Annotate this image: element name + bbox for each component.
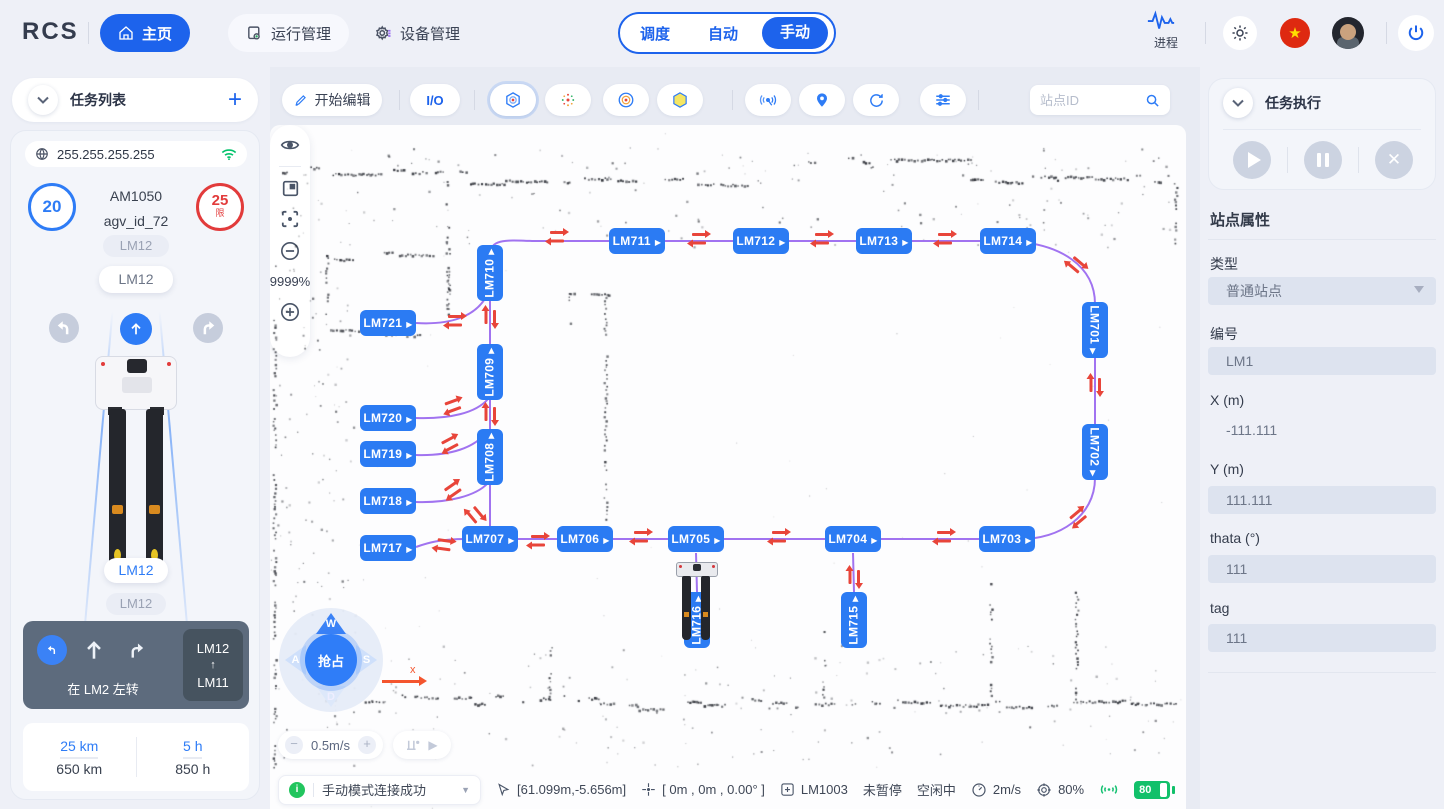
straight-icon[interactable] xyxy=(81,637,107,663)
pause-icon xyxy=(1317,153,1329,167)
task-execution-sidebar: 任务执行 ✕ 站点属性 类型普通站点编号LM1X (m)-111.111Y (m… xyxy=(1200,67,1444,809)
mode-tabs: 调度 自动 手动 xyxy=(618,12,836,54)
cursor-icon xyxy=(496,782,511,797)
field-label: X (m) xyxy=(1210,392,1244,408)
collapse-button[interactable] xyxy=(28,85,58,115)
status-item: LM1003 xyxy=(780,782,848,797)
mode-status-text: 手动模式连接成功 xyxy=(322,780,453,799)
start-edit-button[interactable]: 开始编辑 xyxy=(282,84,382,116)
divider xyxy=(1386,22,1387,44)
station-tag: LM12 xyxy=(104,558,168,583)
mode-status-select[interactable]: i 手动模式连接成功 ▼ xyxy=(278,775,481,805)
station-tag: LM12 xyxy=(99,266,173,293)
station-node-lm708[interactable]: LM708▶ xyxy=(477,429,503,485)
station-node-lm714[interactable]: LM714▶ xyxy=(980,228,1036,254)
tab-dispatch[interactable]: 调度 xyxy=(626,23,684,44)
status-item: 空闲中 xyxy=(917,780,956,799)
divider xyxy=(1287,147,1288,173)
station-tag: LM12 xyxy=(106,593,166,615)
total-distance: 650 km xyxy=(56,761,102,777)
add-task-button[interactable]: + xyxy=(228,90,242,110)
station-node-lm702[interactable]: LM702▶ xyxy=(1082,424,1108,480)
info-icon: i xyxy=(289,782,305,798)
sun-icon xyxy=(1231,24,1249,42)
forklift-body xyxy=(95,356,177,410)
speed-decrease-button[interactable]: − xyxy=(285,736,303,754)
seize-control-button[interactable]: 抢占 xyxy=(305,634,357,686)
station-node-lm706[interactable]: LM706▶ xyxy=(557,526,613,552)
position-target-icon xyxy=(1036,782,1052,798)
vehicle-agv-id: agv_id_72 xyxy=(86,213,186,229)
scatter-points-icon xyxy=(559,91,577,109)
theme-toggle-button[interactable] xyxy=(1223,16,1257,50)
search-icon[interactable] xyxy=(1145,93,1160,108)
monitor-icon xyxy=(246,25,263,42)
vehicle-ip: 255.255.255.255 xyxy=(57,147,213,162)
tab-auto[interactable]: 自动 xyxy=(694,23,752,44)
vehicle-card[interactable]: 255.255.255.255 20 25限 AM1050 agv_id_72 … xyxy=(10,130,260,800)
radar-button[interactable] xyxy=(745,84,791,116)
location-pin-button[interactable] xyxy=(799,84,845,116)
status-item: [ 0m , 0m , 0.00° ] xyxy=(641,782,765,797)
battery-icon: 80 xyxy=(1134,781,1170,799)
task-list-sidebar: 任务列表 + 255.255.255.255 20 25限 AM1050 agv… xyxy=(0,67,270,809)
nav-item-home[interactable]: 主页 xyxy=(100,14,190,52)
status-item xyxy=(1099,782,1119,797)
speedometer-icon xyxy=(971,782,987,798)
gear-icon xyxy=(374,24,392,42)
vehicle-ip-row[interactable]: 255.255.255.255 xyxy=(25,141,247,167)
fork-right xyxy=(146,409,163,581)
battery-indicator: 80 xyxy=(1134,781,1170,799)
turn-left-active-icon[interactable] xyxy=(37,635,67,665)
scatter-points-button[interactable] xyxy=(545,84,591,116)
station-node-lm721[interactable]: LM721▶ xyxy=(360,310,416,336)
station-node-lm701[interactable]: LM701▶ xyxy=(1082,302,1108,358)
station-node-lm709[interactable]: LM709▶ xyxy=(477,344,503,400)
divider xyxy=(732,90,733,110)
speed-limit-circle: 25限 xyxy=(196,183,244,231)
hexagon-target-button[interactable] xyxy=(490,84,536,116)
power-icon xyxy=(1406,23,1426,43)
process-button[interactable]: 进程 xyxy=(1146,10,1186,51)
nav-item-device[interactable]: 设备管理 xyxy=(356,14,478,52)
manual-joystick: W A S D 抢占 xyxy=(279,608,383,712)
turn-right-icon[interactable] xyxy=(123,637,149,663)
speed-increase-button[interactable]: + xyxy=(358,736,376,754)
sliders-button[interactable] xyxy=(920,84,966,116)
go-straight-button[interactable] xyxy=(120,313,152,345)
trip-hours: 5 h xyxy=(183,738,202,759)
station-node-lm712[interactable]: LM712▶ xyxy=(733,228,789,254)
divider xyxy=(1223,129,1421,130)
circle-target-button[interactable] xyxy=(603,84,649,116)
station-node-lm705[interactable]: LM705▶ xyxy=(668,526,724,552)
distance-stats: 25 km 650 km xyxy=(23,723,136,791)
nav-item-operation[interactable]: 运行管理 xyxy=(228,14,349,52)
navbar: RCS 主页 运行管理 设备管理 调度 自动 手动 进程 ★ xyxy=(0,0,1444,67)
divider xyxy=(474,90,475,110)
lift-control[interactable]: ▶ xyxy=(393,731,451,759)
hours-stats: 5 h 850 h xyxy=(137,723,250,791)
refresh-icon xyxy=(868,92,885,109)
divider xyxy=(1208,672,1436,673)
station-search xyxy=(1030,85,1170,115)
station-tag: LM12 xyxy=(103,235,169,257)
power-button[interactable] xyxy=(1398,15,1434,51)
navigation-instruction-card: 在 LM2 左转 LM12 ↑ LM11 xyxy=(23,621,249,709)
language-flag-button[interactable]: ★ xyxy=(1280,18,1310,48)
hexagon-yellow-button[interactable] xyxy=(657,84,703,116)
hexagon-yellow-icon xyxy=(671,91,689,109)
signal-icon xyxy=(1099,782,1119,797)
chevron-down-icon: ▼ xyxy=(461,785,470,795)
station-node-lm719[interactable]: LM719▶ xyxy=(360,441,416,467)
nav-action-text: 在 LM2 左转 xyxy=(33,679,173,698)
field-input[interactable]: 111.111 xyxy=(1208,486,1436,514)
trip-distance: 25 km xyxy=(60,738,98,759)
divider xyxy=(978,90,979,110)
divider xyxy=(1205,22,1206,44)
crosshair-icon xyxy=(641,782,656,797)
field-input[interactable]: 111 xyxy=(1208,624,1436,652)
field-label: Y (m) xyxy=(1210,461,1244,477)
home-icon xyxy=(118,25,134,41)
field-label: 类型 xyxy=(1210,254,1238,274)
app-logo: RCS xyxy=(22,18,79,46)
field-label: thata (°) xyxy=(1210,530,1260,546)
station-node-lm715[interactable]: LM715▶ xyxy=(841,592,867,648)
map-canvas[interactable]: LM711▶LM712▶LM713▶LM714▶LM710▶LM721▶LM70… xyxy=(270,125,1186,809)
io-button[interactable]: I/O xyxy=(410,84,460,116)
route-paths xyxy=(270,125,1186,809)
speed-circle: 20 xyxy=(28,183,76,231)
divider xyxy=(1208,239,1436,240)
circle-target-icon xyxy=(617,91,635,109)
play-task-button[interactable] xyxy=(1233,141,1271,179)
status-bar: i 手动模式连接成功 ▼ [61.099m,-5.656m][ 0m , 0m … xyxy=(270,770,1186,809)
process-label: 进程 xyxy=(1146,34,1186,51)
nav-item-label: 设备管理 xyxy=(400,23,460,44)
hexagon-target-icon xyxy=(504,91,522,109)
collapse-button[interactable] xyxy=(1223,88,1253,118)
station-props-title: 站点属性 xyxy=(1210,209,1270,230)
divider xyxy=(313,783,314,797)
user-avatar[interactable] xyxy=(1332,17,1364,49)
refresh-button[interactable] xyxy=(853,84,899,116)
field-input[interactable]: 111 xyxy=(1208,555,1436,583)
station-node-lm711[interactable]: LM711▶ xyxy=(609,228,665,254)
status-items: [61.099m,-5.656m][ 0m , 0m , 0.00° ]LM10… xyxy=(496,780,1170,799)
station-node-lm717[interactable]: LM717▶ xyxy=(360,535,416,561)
waveform-icon xyxy=(1146,10,1186,32)
divider xyxy=(399,90,400,110)
status-item: [61.099m,-5.656m] xyxy=(496,782,626,797)
pause-task-button[interactable] xyxy=(1304,141,1342,179)
route-from: LM12 xyxy=(197,640,230,657)
play-icon xyxy=(1248,152,1261,168)
close-icon: ✕ xyxy=(1387,150,1401,170)
speed-control: − 0.5m/s + xyxy=(278,731,383,759)
route-to: LM11 xyxy=(197,674,229,691)
field-value: -111.111 xyxy=(1208,418,1436,442)
task-list-header: 任务列表 + xyxy=(12,78,258,122)
x-axis-label: x xyxy=(410,664,416,676)
tab-manual[interactable]: 手动 xyxy=(762,17,828,49)
total-hours: 850 h xyxy=(175,761,210,777)
pencil-icon xyxy=(294,93,308,107)
odometer-card: 25 km 650 km 5 h 850 h xyxy=(23,723,249,791)
nav-item-label: 运行管理 xyxy=(271,23,331,44)
field-label: tag xyxy=(1210,600,1229,616)
station-node-lm718[interactable]: LM718▶ xyxy=(360,488,416,514)
cancel-task-button[interactable]: ✕ xyxy=(1375,141,1413,179)
field-input[interactable]: LM1 xyxy=(1208,347,1436,375)
sliders-icon xyxy=(934,92,952,108)
task-list-title: 任务列表 xyxy=(70,90,216,110)
x-axis-arrow xyxy=(382,680,420,683)
play-small-icon: ▶ xyxy=(428,738,437,752)
route-box: LM12 ↑ LM11 xyxy=(183,629,243,701)
station-node-lm720[interactable]: LM720▶ xyxy=(360,405,416,431)
station-search-input[interactable] xyxy=(1040,93,1145,108)
field-label: 编号 xyxy=(1210,324,1238,344)
speed-value: 0.5m/s xyxy=(311,738,350,753)
wifi-icon xyxy=(221,148,237,161)
station-node-lm707[interactable]: LM707▶ xyxy=(462,526,518,552)
route-arrow: ↑ xyxy=(210,657,216,674)
plus-square-icon xyxy=(780,782,795,797)
map-area: 开始编辑 I/O xyxy=(270,67,1186,809)
globe-icon xyxy=(35,147,49,161)
task-execution-card: 任务执行 ✕ xyxy=(1208,78,1436,190)
status-item: 未暂停 xyxy=(863,780,902,799)
station-node-lm703[interactable]: LM703▶ xyxy=(979,526,1035,552)
start-edit-label: 开始编辑 xyxy=(315,90,371,110)
turn-left-icon[interactable] xyxy=(49,313,79,343)
station-node-lm713[interactable]: LM713▶ xyxy=(856,228,912,254)
station-node-lm704[interactable]: LM704▶ xyxy=(825,526,881,552)
flag-china-icon: ★ xyxy=(1288,24,1301,42)
radar-icon xyxy=(759,91,777,109)
divider xyxy=(88,22,89,44)
divider xyxy=(1358,147,1359,173)
chevron-down-icon xyxy=(1414,286,1424,293)
turn-right-icon[interactable] xyxy=(193,313,223,343)
station-type-select[interactable]: 普通站点 xyxy=(1208,277,1436,305)
status-item: 2m/s xyxy=(971,782,1021,798)
task-execution-title: 任务执行 xyxy=(1265,93,1321,113)
fork-left xyxy=(109,409,126,581)
location-pin-icon xyxy=(814,91,830,109)
station-node-lm710[interactable]: LM710▶ xyxy=(477,245,503,301)
status-item: 80% xyxy=(1036,782,1084,798)
nav-item-label: 主页 xyxy=(142,23,172,44)
agv-robot-marker[interactable] xyxy=(676,562,718,642)
vehicle-model: AM1050 xyxy=(86,188,186,204)
fork-icon xyxy=(406,739,420,751)
